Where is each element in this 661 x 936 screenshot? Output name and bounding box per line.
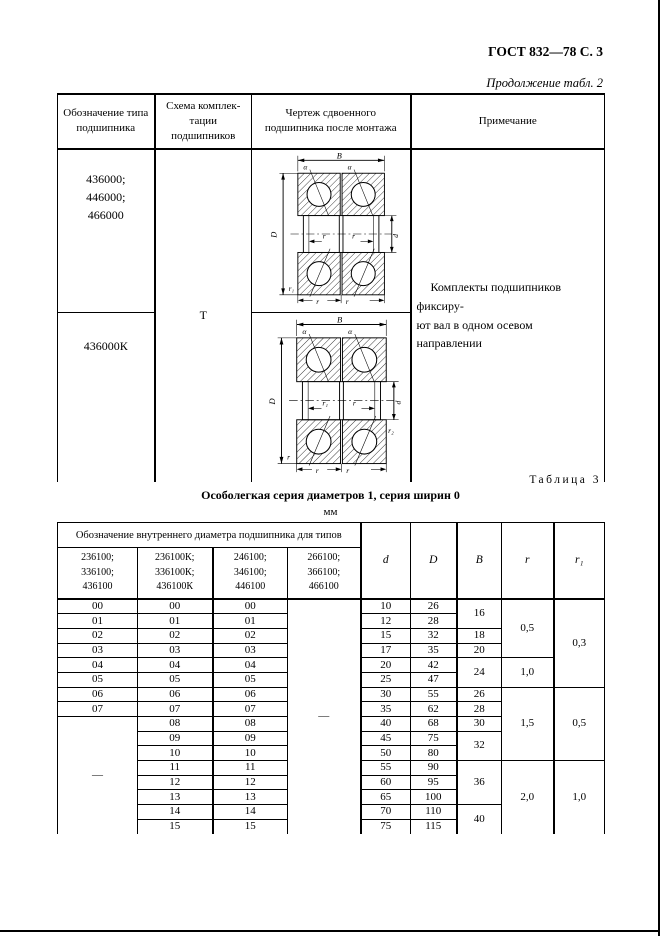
bearing-type-row2: 436000К: [58, 313, 155, 482]
cell-D: 62: [411, 702, 457, 717]
table3-dimensions-table: Обозначение внутреннего диаметра подшипн…: [57, 522, 605, 834]
cell-B: 16: [457, 599, 502, 629]
cell-c2: 13: [138, 790, 213, 805]
cell-c3: 12: [213, 775, 288, 790]
table2-continuation-label: Продолжение табл. 2: [486, 76, 603, 91]
cell-c3: 01: [213, 614, 288, 629]
table2-continuation-table: Обозначение типа подшипника Схема компле…: [57, 93, 605, 482]
cell-r1: 0,3: [554, 599, 605, 688]
cell-d: 10: [361, 599, 411, 614]
cell-c3: 09: [213, 731, 288, 746]
table3-units: мм: [57, 506, 604, 518]
bearing-type-row1: 436000; 446000; 466000: [58, 149, 155, 313]
col-header-bearing-type: Обозначение типа подшипника: [58, 94, 155, 149]
cell-c2: 11: [138, 761, 213, 776]
cell-r1: 0,5: [554, 687, 605, 760]
cell-B: 40: [457, 805, 502, 834]
group-header-bore-designation: Обозначение внутреннего диаметра подшипн…: [58, 523, 361, 548]
cell-D: 28: [411, 614, 457, 629]
cell-B: 20: [457, 643, 502, 658]
cell-d: 75: [361, 819, 411, 833]
cell-B: 30: [457, 717, 502, 732]
document-page: ГОСТ 832—78 С. 3 Продолжение табл. 2 Обо…: [0, 0, 661, 936]
cell-D: 47: [411, 672, 457, 687]
cell-D: 90: [411, 761, 457, 776]
cell-D: 35: [411, 643, 457, 658]
dim-label-r1: r₁: [322, 399, 328, 408]
dim-label-D: D: [269, 232, 278, 239]
dim-label-B: B: [337, 152, 342, 161]
scheme-value: Т: [155, 149, 252, 482]
dim-label-alpha: α: [302, 327, 307, 336]
cell-c2: 06: [138, 687, 213, 702]
cell-d: 30: [361, 687, 411, 702]
type-group-2: 236100К; 336100К; 436100К: [138, 548, 213, 599]
col-header-D: D: [411, 523, 457, 599]
cell-d: 65: [361, 790, 411, 805]
dim-label-d: d: [391, 234, 400, 238]
cell-D: 80: [411, 746, 457, 761]
cell-d: 60: [361, 775, 411, 790]
dim-label-r: r: [346, 466, 349, 475]
dim-label-alpha: α: [348, 327, 353, 336]
dim-label-r: r: [287, 453, 290, 462]
cell-c2: 15: [138, 819, 213, 833]
cell-c3: 07: [213, 702, 288, 717]
dim-label-r: r: [316, 297, 319, 306]
gost-header: ГОСТ 832—78 С. 3: [488, 44, 603, 60]
cell-B: 26: [457, 687, 502, 702]
dim-label-r2: r₂: [388, 426, 394, 435]
cell-d: 35: [361, 702, 411, 717]
cell-c2: 08: [138, 717, 213, 732]
page-scan-edge-bottom: [0, 930, 659, 932]
cell-c3: 05: [213, 672, 288, 687]
dim-label-r1: r₁: [288, 284, 294, 293]
cell-c1: 02: [58, 628, 138, 643]
cell-D: 95: [411, 775, 457, 790]
cell-c2: 00: [138, 599, 213, 614]
cell-d: 25: [361, 672, 411, 687]
cell-d: 12: [361, 614, 411, 629]
cell-c1: 07: [58, 702, 138, 717]
cell-D: 68: [411, 717, 457, 732]
dim-label-r: r: [316, 466, 319, 475]
cell-c2: 03: [138, 643, 213, 658]
cell-r1: 1,0: [554, 761, 605, 834]
col-header-d: d: [361, 523, 411, 599]
type-group-3: 246100; 346100; 446100: [213, 548, 288, 599]
table3-title: Особолегкая серия диаметров 1, серия шир…: [57, 488, 604, 503]
dim-label-D: D: [267, 398, 277, 406]
cell-c1: 06: [58, 687, 138, 702]
cell-c3: 11: [213, 761, 288, 776]
cell-B: 36: [457, 761, 502, 805]
cell-c3: 10: [213, 746, 288, 761]
table-row: 00 00 00 — 10 26 16 0,5 0,3: [58, 599, 605, 614]
cell-D: 100: [411, 790, 457, 805]
cell-d: 50: [361, 746, 411, 761]
cell-D: 75: [411, 731, 457, 746]
cell-D: 115: [411, 819, 457, 833]
dim-label-r: r: [353, 399, 356, 408]
cell-c3: 14: [213, 805, 288, 820]
table3-caption: Таблица 3: [529, 474, 601, 486]
cell-c3: 04: [213, 658, 288, 673]
cell-c3: 15: [213, 819, 288, 833]
cell-c2: 12: [138, 775, 213, 790]
cell-c2: 07: [138, 702, 213, 717]
cell-d: 55: [361, 761, 411, 776]
cell-D: 32: [411, 628, 457, 643]
col-header-r1: r₁: [554, 523, 605, 599]
duplex-bearing-drawing-1: B α α r r: [261, 151, 401, 306]
cell-c2: 04: [138, 658, 213, 673]
dim-label-alpha: α: [347, 163, 351, 172]
bearing-drawing-cell-1: B α α r r: [252, 149, 411, 313]
duplex-bearing-drawing-2: B α α r₁: [258, 315, 404, 475]
cell-c1: 05: [58, 672, 138, 687]
cell-c4-dash: —: [288, 599, 361, 834]
cell-r: 2,0: [502, 761, 554, 834]
cell-c1: 03: [58, 643, 138, 658]
cell-B: 32: [457, 731, 502, 760]
col-header-B: B: [457, 523, 502, 599]
dim-label-B: B: [337, 315, 343, 325]
dim-label-r: r: [352, 232, 355, 241]
cell-B: 28: [457, 702, 502, 717]
cell-c1: 00: [58, 599, 138, 614]
cell-r: 0,5: [502, 599, 554, 658]
cell-D: 55: [411, 687, 457, 702]
cell-c1: 01: [58, 614, 138, 629]
cell-c2: 09: [138, 731, 213, 746]
cell-c2: 14: [138, 805, 213, 820]
col-header-note: Примечание: [411, 94, 605, 149]
cell-c2: 05: [138, 672, 213, 687]
cell-D: 26: [411, 599, 457, 614]
col-header-scheme: Схема комплек-тации подшипников: [155, 94, 252, 149]
cell-c3: 08: [213, 717, 288, 732]
cell-c2: 10: [138, 746, 213, 761]
dim-label-d: d: [393, 401, 402, 405]
cell-d: 17: [361, 643, 411, 658]
cell-c3: 06: [213, 687, 288, 702]
cell-D: 110: [411, 805, 457, 820]
note-cell: Комплекты подшипников фиксиру- ют вал в …: [411, 149, 605, 482]
cell-d: 40: [361, 717, 411, 732]
type-group-1: 236100; 336100; 436100: [58, 548, 138, 599]
cell-c1-dash: —: [58, 717, 138, 834]
dim-label-alpha: α: [303, 163, 307, 172]
cell-c3: 02: [213, 628, 288, 643]
cell-B: 18: [457, 628, 502, 643]
cell-D: 42: [411, 658, 457, 673]
cell-c2: 01: [138, 614, 213, 629]
cell-r: 1,0: [502, 658, 554, 687]
col-header-drawing: Чертеж сдвоенного подшипника после монта…: [252, 94, 411, 149]
cell-c3: 13: [213, 790, 288, 805]
cell-d: 15: [361, 628, 411, 643]
cell-d: 20: [361, 658, 411, 673]
cell-r: 1,5: [502, 687, 554, 760]
cell-c1: 04: [58, 658, 138, 673]
cell-c3: 03: [213, 643, 288, 658]
bearing-drawing-cell-2: B α α r₁: [252, 313, 411, 482]
dim-label-r: r: [322, 232, 325, 241]
page-scan-edge-right: [658, 0, 660, 936]
cell-c3: 00: [213, 599, 288, 614]
col-header-r: r: [502, 523, 554, 599]
cell-c2: 02: [138, 628, 213, 643]
dim-label-r: r: [345, 297, 348, 306]
cell-d: 70: [361, 805, 411, 820]
cell-B: 24: [457, 658, 502, 687]
cell-d: 45: [361, 731, 411, 746]
type-group-4: 266100; 366100; 466100: [288, 548, 361, 599]
